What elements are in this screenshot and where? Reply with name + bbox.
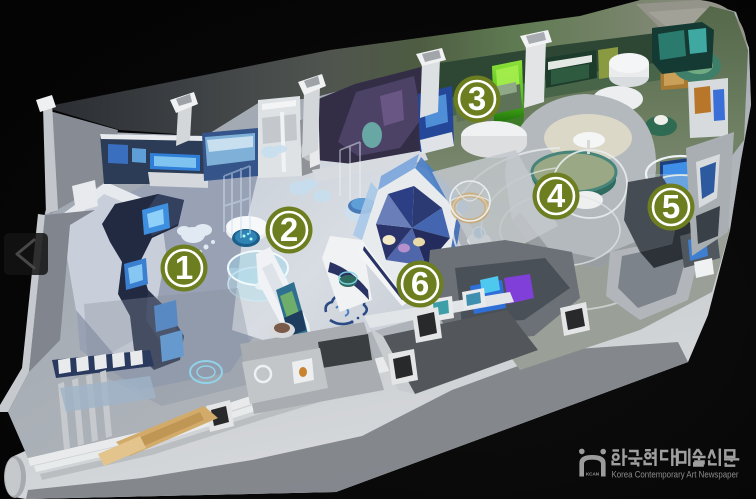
svg-text:5: 5 (662, 188, 680, 225)
svg-text:3: 3 (468, 80, 486, 117)
svg-text:KCAN: KCAN (586, 472, 600, 477)
svg-text:6: 6 (411, 265, 429, 302)
svg-text:4: 4 (547, 177, 566, 214)
svg-text:2: 2 (280, 211, 298, 248)
svg-text:1: 1 (175, 249, 193, 286)
svg-text:Korea Contemporary Art Newspap: Korea Contemporary Art Newspaper (612, 470, 739, 480)
